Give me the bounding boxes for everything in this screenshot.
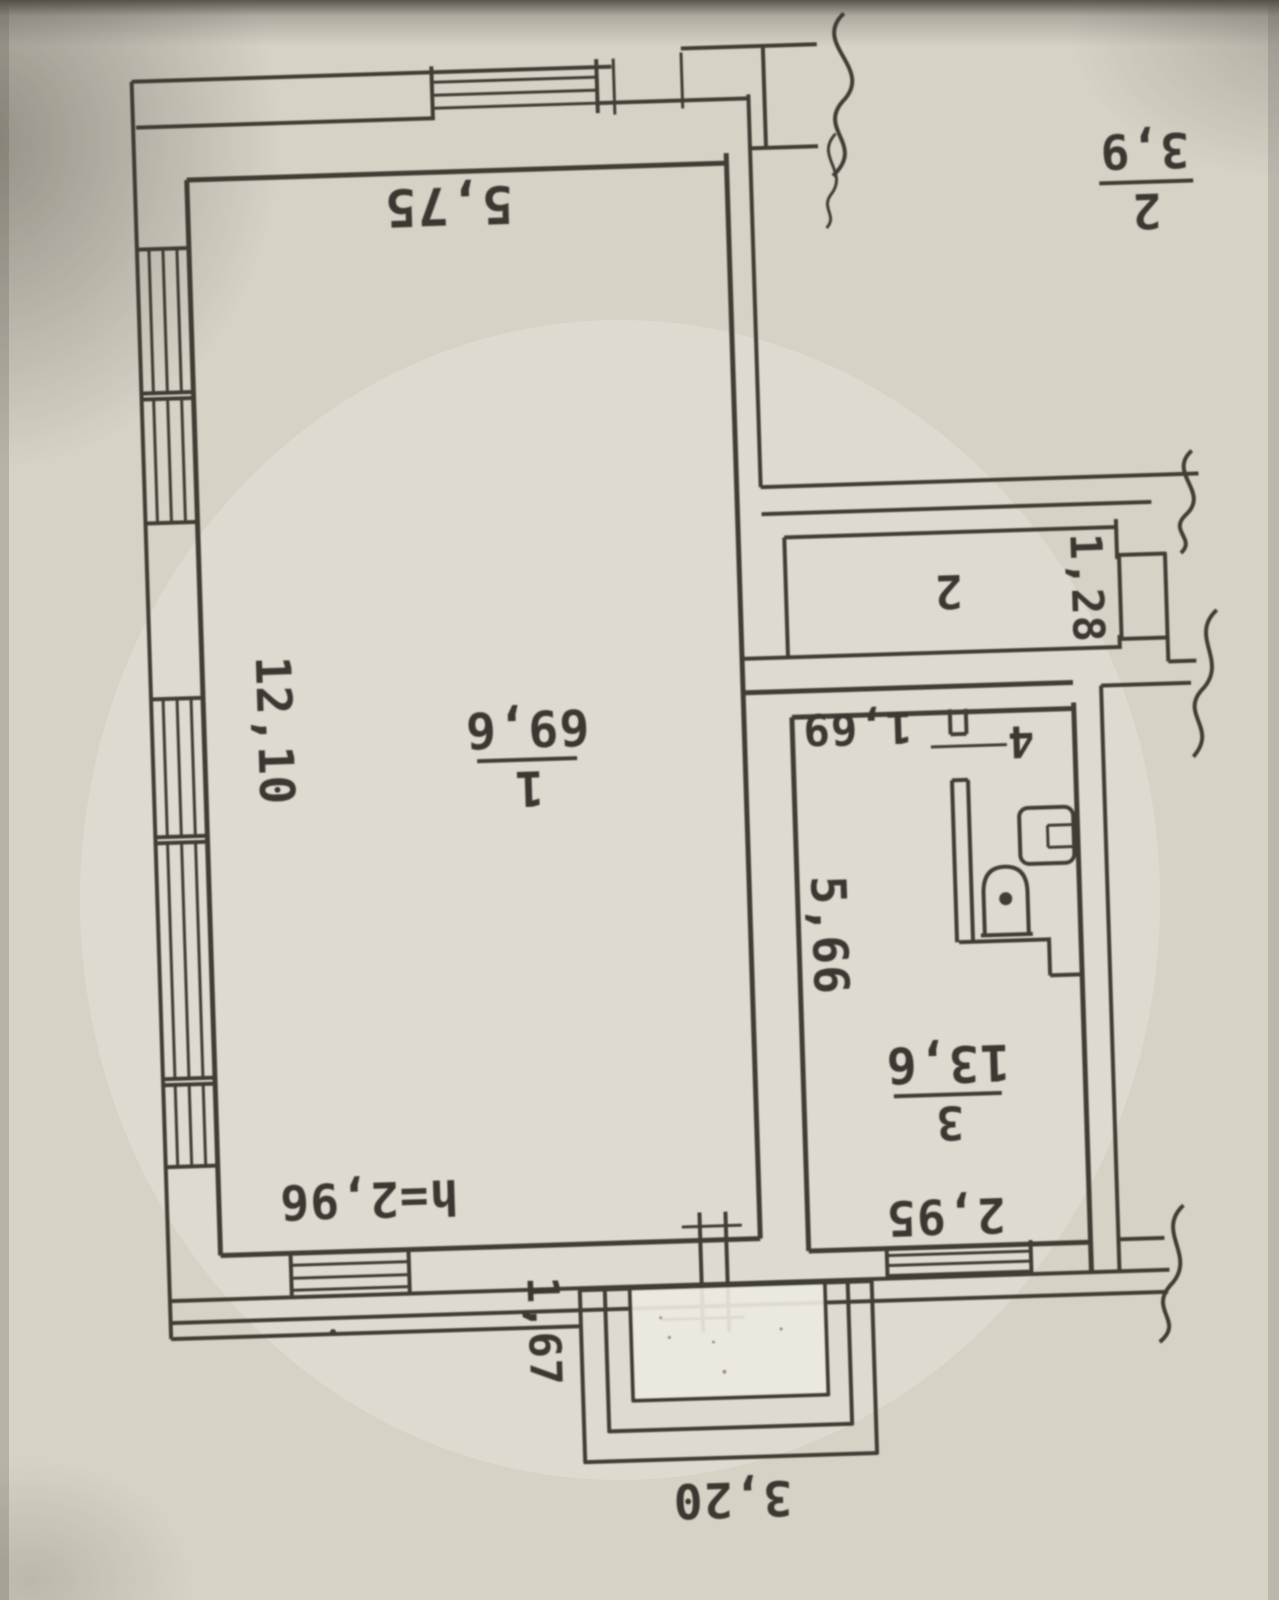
room-3-number: 3 [935, 1095, 965, 1150]
dim-room3-length: 5,66 [799, 875, 859, 996]
svg-text:5,75: 5,75 [383, 173, 514, 237]
room-1-area: 69,6 [464, 698, 590, 760]
svg-text:1,69: 1,69 [802, 701, 914, 755]
corner-fraction-numerator: 2 [1130, 181, 1162, 238]
dim-balcony-depth: 1,67 [516, 1276, 570, 1388]
dim-room3-width: 2,95 [885, 1186, 1006, 1246]
svg-text:h=2,96: h=2,96 [278, 1168, 459, 1230]
dim-room2-depth: 1,28 [1059, 532, 1113, 644]
dim-balcony-width: 3,20 [672, 1469, 793, 1529]
dim-room4-width: 1,69 [802, 701, 914, 755]
room-2-number: 2 [933, 564, 963, 619]
scan-edge-shadow-right [1268, 0, 1279, 1600]
svg-text:12,10: 12,10 [244, 655, 305, 806]
paper-highlight [80, 320, 1160, 1480]
scan-edge-shadow-left [0, 0, 9, 1600]
room-3-area: 13,6 [885, 1033, 1011, 1095]
balcony-inner-floor [630, 1283, 828, 1401]
svg-text:1,67: 1,67 [516, 1276, 570, 1388]
scanned-floor-plan: 5,75 12,10 1 69,6 h=2,96 2 1,28 1,69 [0, 0, 1279, 1600]
svg-text:3,20: 3,20 [672, 1469, 793, 1529]
svg-text:2,95: 2,95 [885, 1186, 1006, 1246]
room-4-label: 4 [1006, 715, 1035, 767]
room-4-number: 4 [1006, 715, 1035, 767]
room-2-label: 2 [933, 564, 963, 619]
room-1-number: 1 [513, 759, 545, 816]
svg-text:1,28: 1,28 [1059, 532, 1113, 644]
dim-room1-width: 5,75 [383, 173, 514, 237]
dim-ceiling-height: h=2,96 [278, 1168, 459, 1230]
svg-text:5,66: 5,66 [799, 875, 859, 996]
dim-room1-length: 12,10 [244, 655, 305, 806]
